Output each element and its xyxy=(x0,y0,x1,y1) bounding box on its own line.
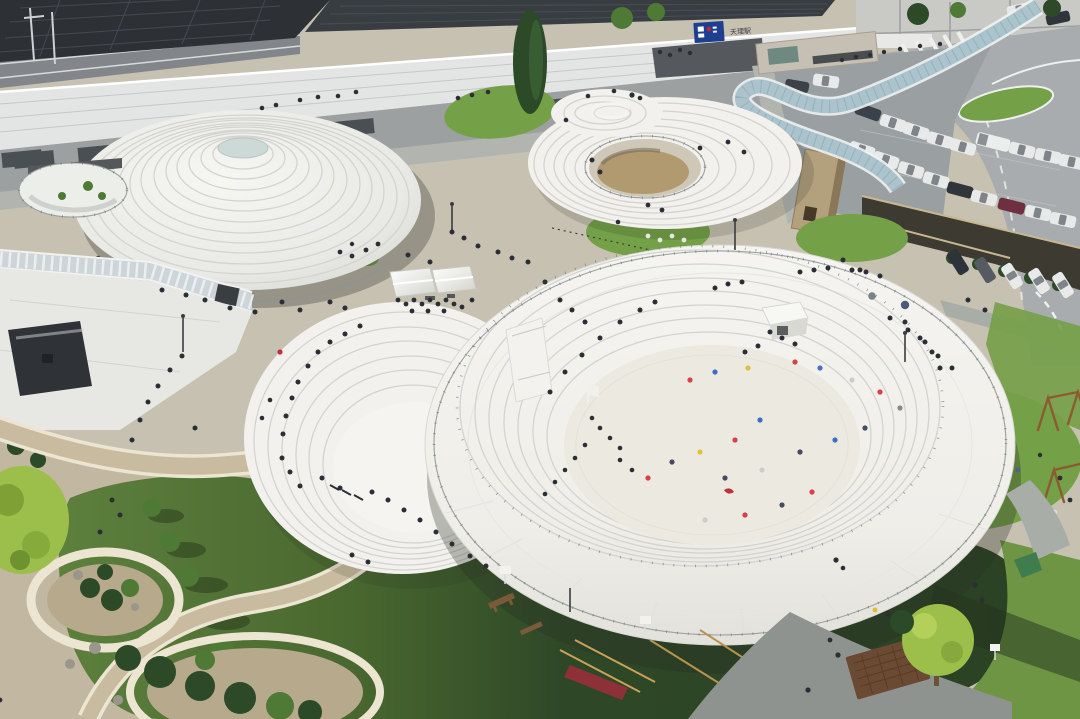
yellow-tree-southeast xyxy=(902,604,974,676)
umbrella-gray xyxy=(868,292,876,300)
aerial-photo-station-plaza: 天理駅 xyxy=(0,0,1080,719)
bowl-sand-floor xyxy=(564,345,860,545)
round-court xyxy=(19,158,127,217)
umbrella-navy xyxy=(901,301,909,309)
photo-canvas: 天理駅 xyxy=(0,0,1080,719)
station-name-text: 天理駅 xyxy=(730,27,752,36)
dome-skylight xyxy=(218,138,268,158)
small-canopy xyxy=(868,34,932,48)
